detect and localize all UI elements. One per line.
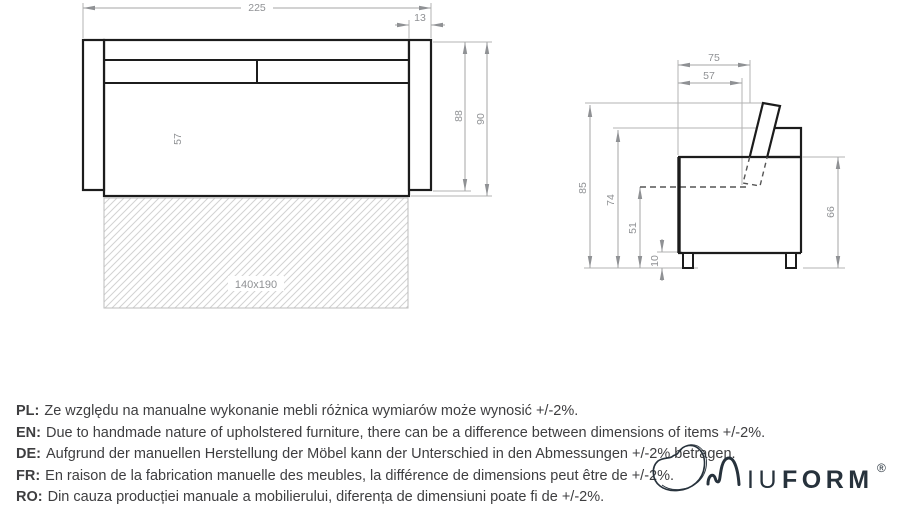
sofa-leg — [683, 253, 693, 268]
dim-armrest-width: 13 — [414, 12, 426, 24]
dim-height-total: 85 — [577, 182, 589, 194]
technical-drawing: 140x190 225 13 57 88 90 — [0, 0, 900, 340]
disclaimer-text: Ze względu na manualne wykonanie mebli r… — [44, 403, 578, 419]
dim-total-width: 225 — [248, 2, 266, 14]
dim-height-back: 74 — [605, 194, 617, 206]
dim-height-arm: 66 — [825, 206, 837, 218]
dim-height-legs: 10 — [649, 255, 661, 267]
dim-total-height: 90 — [475, 113, 487, 125]
disclaimer-text: En raison de la fabrication manuelle des… — [45, 468, 674, 484]
disclaimer-line-pl: PL:Ze względu na manualne wykonanie mebl… — [16, 401, 765, 423]
registered-trademark-symbol: ® — [877, 461, 886, 475]
mattress-area — [104, 198, 408, 308]
miuform-logo: IUFORM ® — [645, 436, 895, 506]
logo-part-form: FORM — [782, 466, 874, 494]
miuform-wordmark: IUFORM — [747, 466, 874, 494]
side-view-extension-lines — [584, 60, 845, 268]
dim-depth-seat: 57 — [703, 70, 715, 82]
disclaimer-text: Din cauza producției manuale a mobilieru… — [48, 489, 605, 505]
lang-label: PL: — [16, 403, 39, 419]
lang-label: EN: — [16, 425, 41, 441]
dim-body-height: 88 — [453, 110, 465, 122]
lang-label: DE: — [16, 446, 41, 462]
dim-depth-total: 75 — [708, 52, 720, 64]
furniture-dimension-sheet: 140x190 225 13 57 88 90 — [0, 0, 900, 510]
miuform-squiggle-icon — [708, 458, 739, 484]
logo-part-iu: IU — [747, 466, 781, 494]
sofa-leg — [786, 253, 796, 268]
mattress-size-label: 140x190 — [235, 279, 277, 291]
dim-height-seat: 51 — [627, 222, 639, 234]
dim-front-height: 57 — [172, 133, 184, 145]
miuform-bean-icon — [653, 445, 706, 491]
lang-label: RO: — [16, 489, 43, 505]
front-view: 140x190 225 13 57 88 90 — [83, 2, 492, 308]
disclaimer-text: Aufgrund der manuellen Herstellung der M… — [46, 446, 736, 462]
side-view: 75 57 85 74 51 10 66 — [577, 52, 845, 281]
lang-label: FR: — [16, 468, 40, 484]
